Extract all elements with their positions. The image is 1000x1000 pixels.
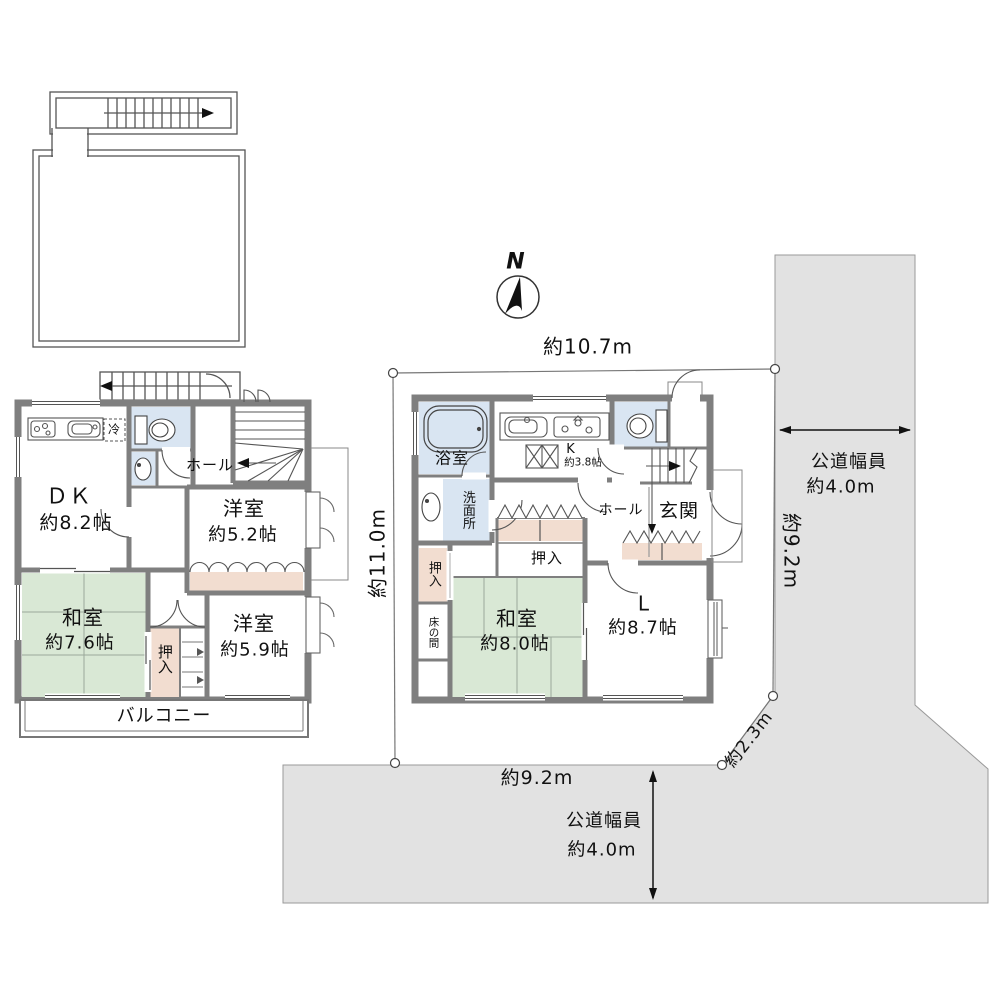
f1-bath-label: 浴室: [435, 451, 469, 468]
f2-fridge-label: 冷: [108, 424, 120, 437]
f2-washitsu-size: 約7.6帖: [45, 635, 115, 654]
f2-yoshitsu59-label: 洋室: [233, 614, 275, 635]
attic-stairs: [104, 98, 214, 128]
f1-kitchen-size: 約3.8帖: [564, 457, 602, 468]
f1-tokonoma-label: 床の間: [427, 616, 438, 648]
attic-stairs-arrow: [202, 108, 214, 118]
f2-basin-icon: [135, 458, 151, 480]
f1-washitsu-label: 和室: [496, 609, 538, 630]
compass-needle: [505, 277, 522, 314]
dim-right: 約9.2m: [781, 513, 802, 589]
road-right-width: 約4.0m: [806, 479, 875, 498]
f2-yoshitsu52-size: 約5.2帖: [208, 527, 278, 546]
road-bottom-width: 約4.0m: [567, 842, 636, 861]
dim-top: 約10.7m: [543, 337, 633, 358]
f1-bay-window: [707, 600, 729, 658]
f1-basin-icon: [422, 493, 440, 521]
f1-oshiire-mid-label: 押入: [531, 551, 563, 567]
f2-dk-label: ＤＫ: [46, 485, 92, 508]
compass-north-label: N: [506, 250, 525, 273]
f2-hall-label: ホール: [186, 458, 234, 474]
f2-oshiire-label: 押入: [156, 644, 172, 674]
road-bottom-name: 公道幅員: [566, 813, 642, 832]
f1-living-label: L: [638, 594, 650, 615]
floorplan-drawing: [0, 0, 1000, 1000]
road-right-name: 公道幅員: [811, 454, 887, 473]
compass: [497, 276, 539, 318]
f2-kitchen-counter: [28, 418, 103, 440]
f1-oshiire-left-label: 押入: [426, 561, 440, 587]
f1-genkan-porch: [712, 470, 742, 562]
f2-washitsu-label: 和室: [62, 608, 104, 629]
f2-yoshitsu52-label: 洋室: [223, 499, 265, 520]
f2-dk-size: 約8.2帖: [39, 514, 112, 534]
first-floor-plan: [412, 370, 743, 701]
f1-floor-hatch-box: [526, 445, 558, 468]
f1-senmenjo-label: 洗面所: [460, 491, 474, 530]
floorplan-image: ＤＫ 約8.2帖 ホール 冷 洋室 約5.2帖 和室 約7.6帖 押入 洋室 約…: [0, 0, 1000, 1000]
attic-plan: [33, 92, 245, 347]
f2-toilet-icon: [135, 416, 175, 444]
dim-bottom: 約9.2m: [501, 769, 574, 789]
dim-left: 約11.0m: [368, 508, 389, 598]
f1-living-size: 約8.7帖: [608, 620, 678, 639]
f1-washitsu-size: 約8.0帖: [480, 636, 550, 655]
f2-balcony-label: バルコニー: [117, 708, 212, 727]
second-floor-plan: [15, 372, 349, 737]
f2-upper-stairs: [100, 372, 240, 400]
f1-kitchen-label: K: [566, 443, 576, 457]
f1-hall-label: ホール: [599, 504, 644, 519]
f1-kitchen-counter: [500, 413, 609, 440]
f2-yoshitsu59-size: 約5.9帖: [220, 642, 290, 661]
f1-genkan-label: 玄関: [659, 502, 699, 522]
f2-closet-fill: [190, 572, 303, 591]
